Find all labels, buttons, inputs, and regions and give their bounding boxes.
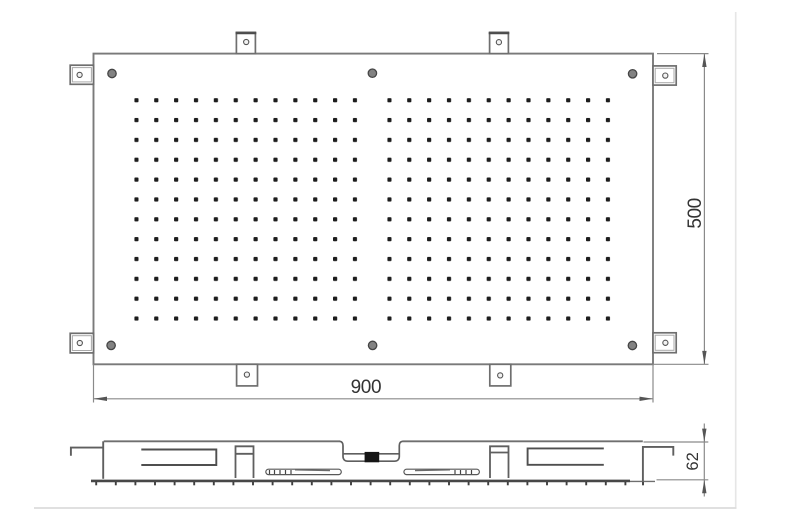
- svg-text:500: 500: [685, 198, 706, 229]
- svg-text:62: 62: [684, 452, 702, 470]
- svg-text:900: 900: [351, 377, 382, 398]
